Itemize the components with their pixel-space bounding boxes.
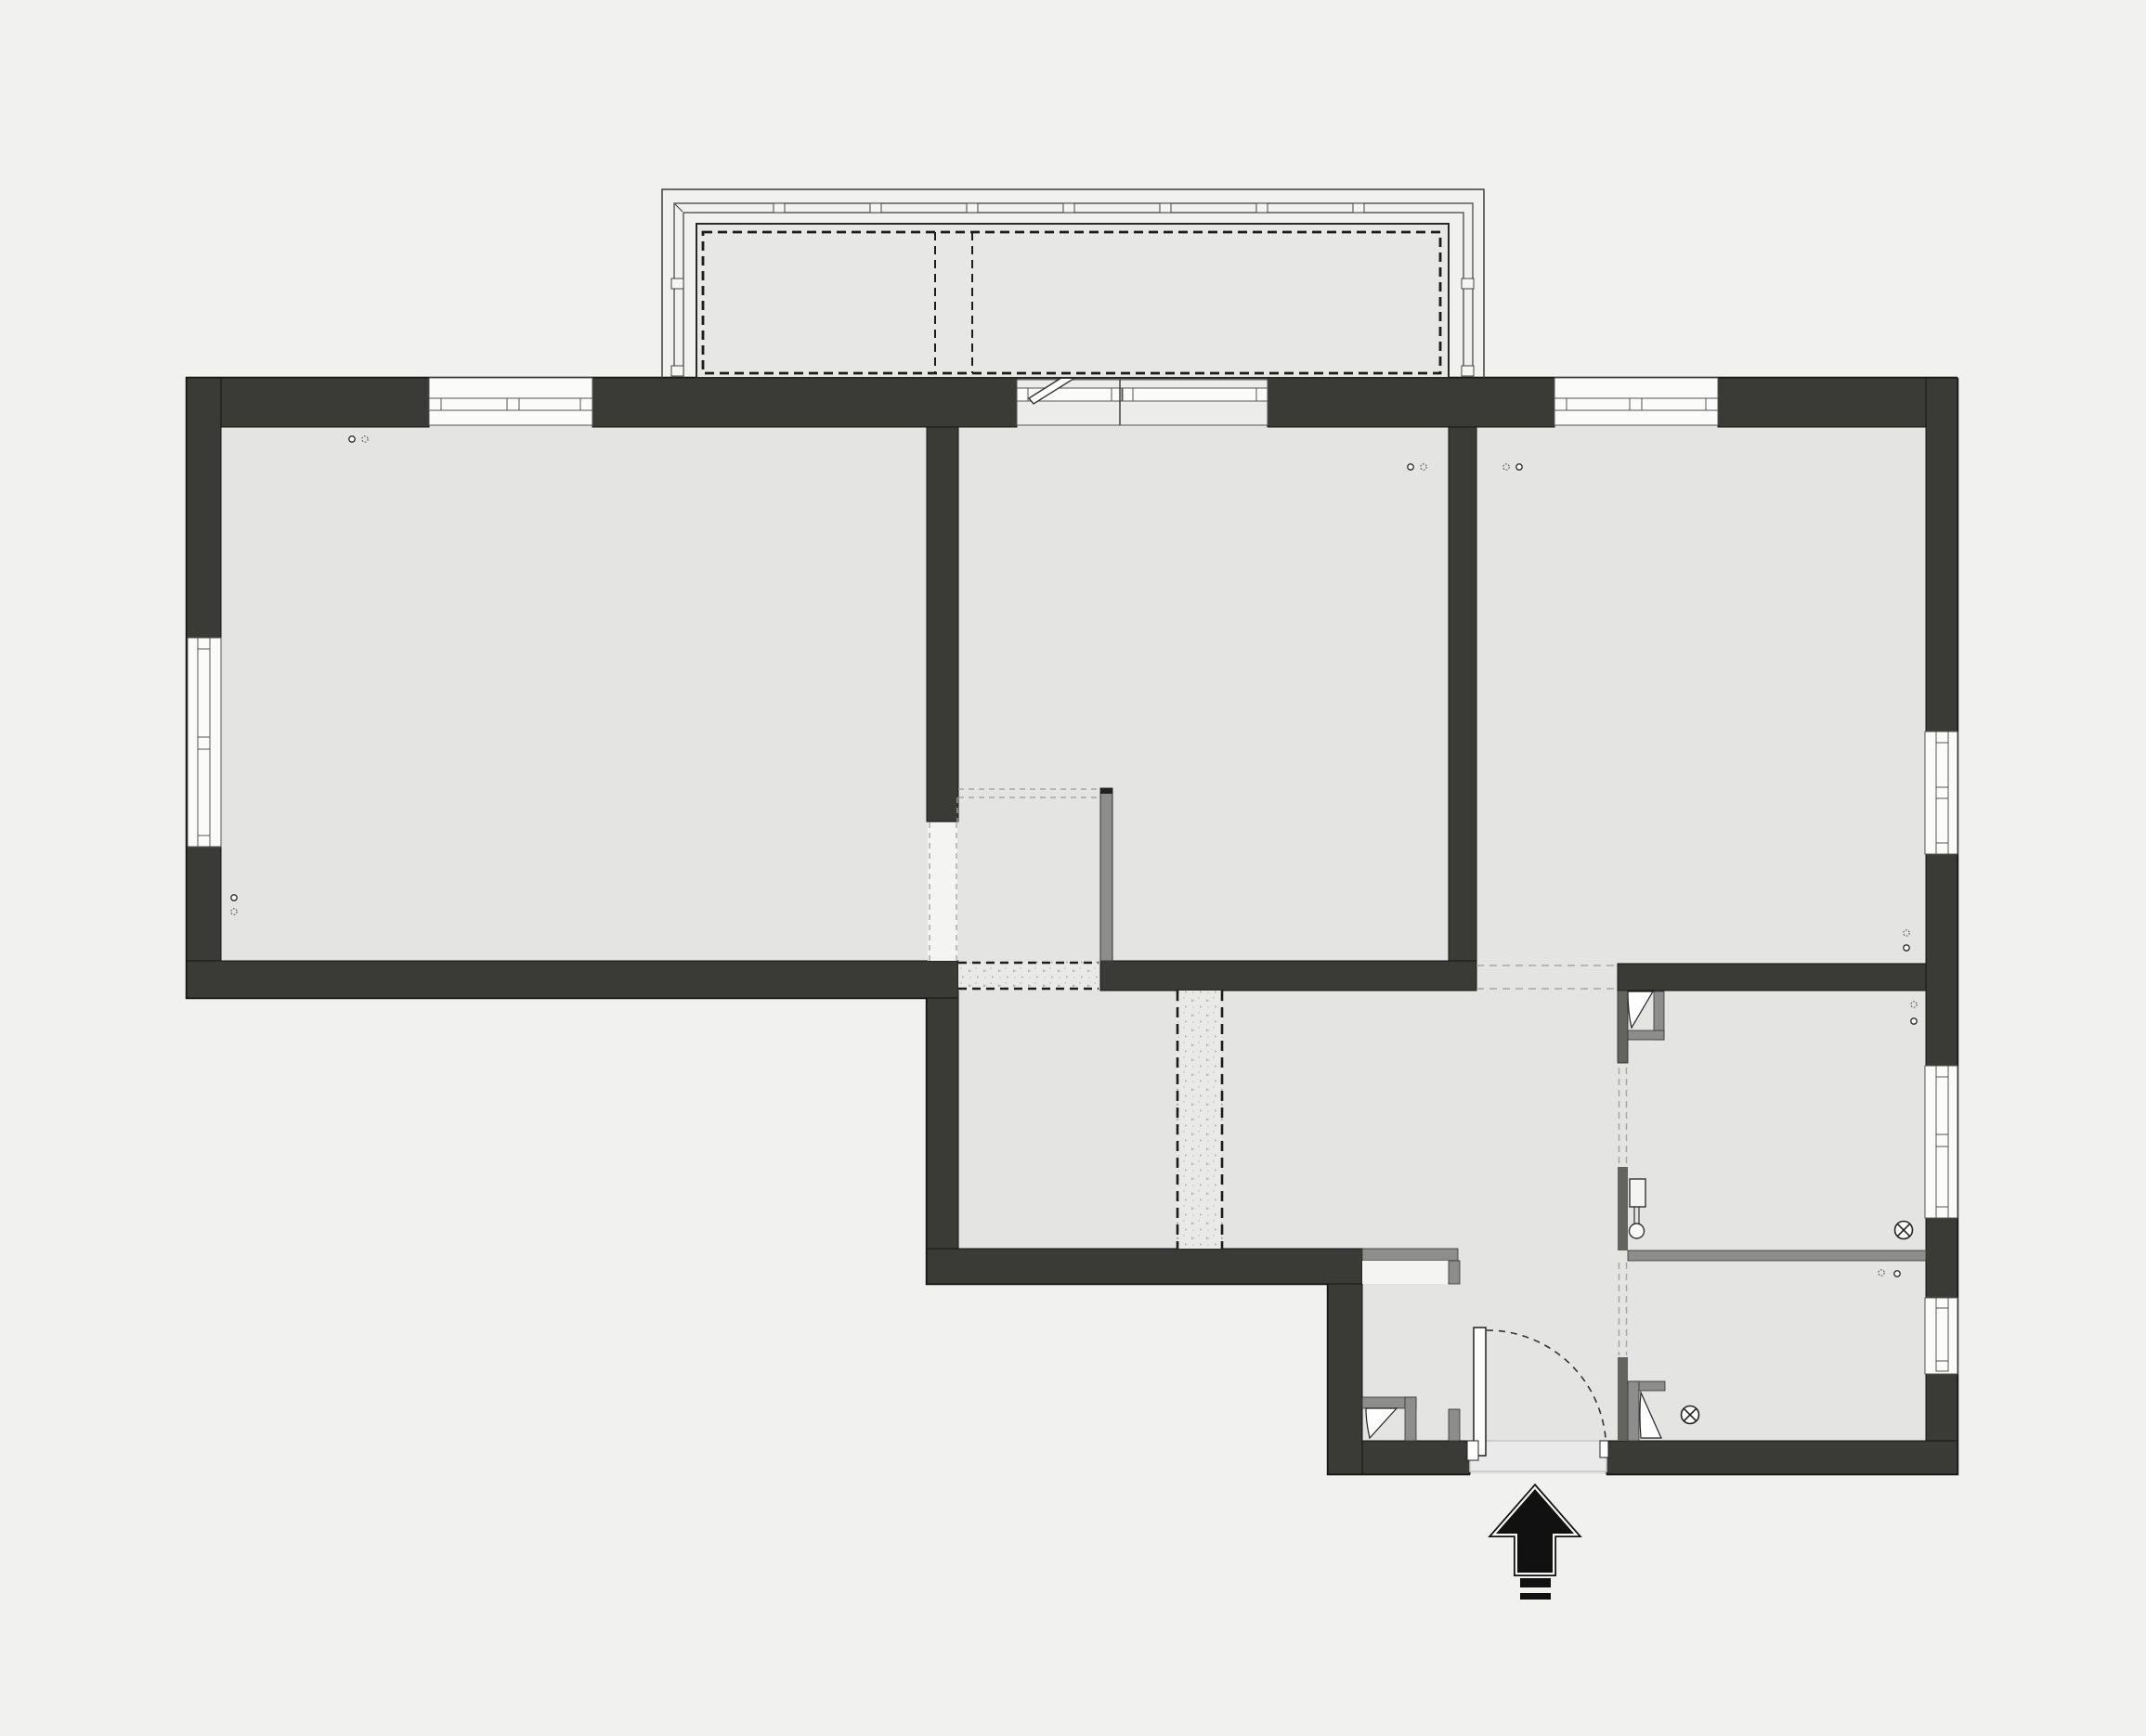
arrow-base-bar — [1520, 1578, 1551, 1587]
partition-end-cap — [1100, 788, 1112, 794]
partition-stub — [1618, 1357, 1628, 1441]
floor-plates — [187, 378, 1957, 1474]
demolition-hatch-icon — [1177, 991, 1223, 1249]
wall — [927, 1249, 1362, 1284]
threshold — [1470, 1441, 1606, 1471]
window — [1925, 1066, 1957, 1218]
window — [1925, 1298, 1957, 1374]
wall — [187, 961, 958, 998]
bath-wc-partition — [1628, 1250, 1926, 1261]
door-leaf — [1474, 1328, 1486, 1456]
partition-stub — [1618, 1167, 1628, 1250]
door-strike — [1600, 1441, 1608, 1457]
niche-partition — [1362, 1249, 1458, 1261]
ceiling-light-icon — [1682, 1406, 1699, 1424]
wall — [1268, 378, 1554, 427]
floor-plan-page — [0, 0, 2146, 1736]
wall — [927, 427, 958, 822]
railing-corner-mark — [675, 204, 683, 212]
wall — [592, 378, 1017, 427]
wall — [1926, 854, 1957, 1066]
floor-plan-drawing — [0, 0, 2146, 1736]
wall — [1618, 964, 1957, 991]
wall — [927, 998, 958, 1284]
wall — [1100, 961, 1476, 991]
door-jamb — [1618, 991, 1628, 1063]
jamb-stub — [1449, 1409, 1460, 1441]
window — [188, 638, 221, 847]
entrance-arrow-icon — [1496, 1489, 1574, 1600]
balcony — [662, 189, 1484, 378]
window — [1925, 732, 1957, 854]
demolition-hatch-icon — [958, 961, 1099, 991]
niche-stub — [1449, 1261, 1460, 1284]
wall — [1718, 378, 1957, 427]
window — [1554, 378, 1718, 425]
window — [429, 378, 592, 425]
new-partition-wall — [1100, 788, 1112, 961]
wall — [187, 378, 221, 638]
hall-floor-plate — [927, 961, 1957, 1284]
niche-recess — [1362, 1261, 1449, 1284]
arrow-base-bar — [1520, 1593, 1551, 1600]
wall — [1606, 1441, 1957, 1474]
wall — [1926, 1218, 1957, 1298]
wall — [1362, 1441, 1470, 1474]
wall — [1449, 427, 1476, 964]
wall — [1926, 378, 1957, 732]
door-hinge — [1467, 1441, 1478, 1460]
ceiling-light-icon — [1895, 1222, 1913, 1239]
wall — [1328, 1284, 1362, 1474]
balcony-slab — [696, 224, 1449, 378]
door-opening-floor — [928, 823, 957, 961]
wall — [187, 378, 429, 427]
upper-floor-plate — [187, 378, 1957, 998]
